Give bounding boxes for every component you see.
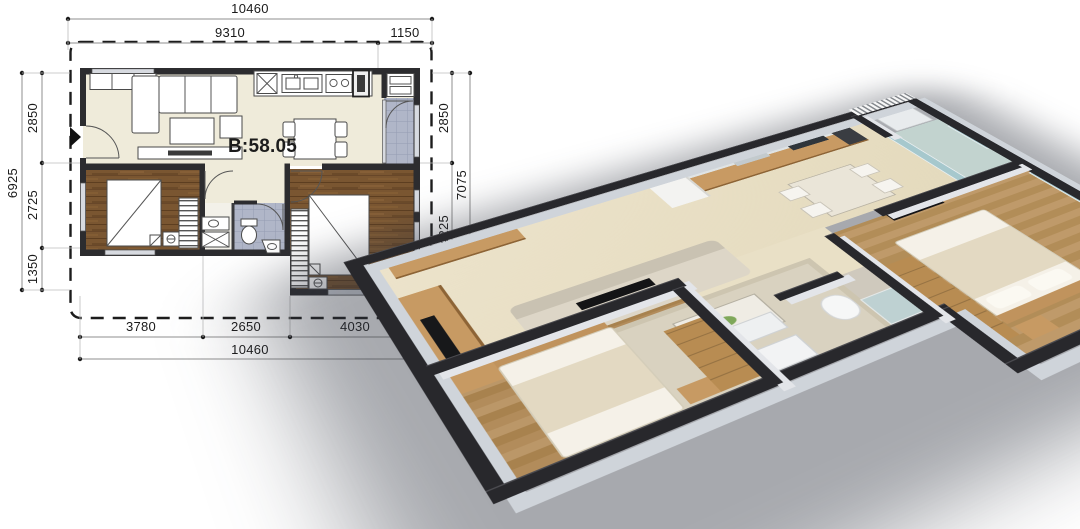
sofa-chaise [132, 76, 159, 133]
window [81, 183, 86, 231]
entry-arrow-icon [70, 127, 81, 147]
toilet [242, 226, 257, 244]
dim-label: 3780 [126, 319, 156, 334]
dimension-left: 6925 2850 2725 1350 [5, 71, 80, 292]
window [414, 190, 419, 212]
chair [335, 122, 347, 137]
dimension-top: 10460 9310 1150 [66, 1, 434, 68]
dim-label: 10460 [231, 1, 269, 16]
balcony-glass-door [383, 100, 387, 163]
dim-label: 1350 [25, 254, 40, 284]
wardrobe-1 [179, 198, 198, 248]
wash-basin [202, 217, 229, 230]
window [105, 250, 155, 255]
render-3d [480, 0, 1080, 529]
apartment-floorplan-image: B:58.05 10460 9310 1150 6925 2850 2725 1… [0, 0, 1080, 529]
coffee-table [170, 118, 214, 144]
chair [335, 142, 347, 157]
toilet-tank [241, 219, 257, 226]
dim-label: 10460 [231, 342, 269, 357]
chair [283, 122, 295, 137]
tv [168, 151, 212, 156]
sofa-main [159, 76, 237, 113]
dim-label: 7075 [454, 170, 469, 200]
dim-label: 2850 [25, 103, 40, 133]
dim-label: 2650 [231, 319, 261, 334]
balcony-floor [384, 98, 415, 164]
dim-label: 6925 [5, 168, 20, 198]
window [414, 105, 419, 157]
dining-table [294, 119, 336, 159]
dim-label: 2725 [25, 190, 40, 220]
dim-label: 9310 [215, 25, 245, 40]
unit-area-label: B:58.05 [228, 136, 297, 157]
dim-label: 2850 [436, 103, 451, 133]
hall-floor [200, 163, 290, 204]
dim-label: 1150 [390, 25, 419, 40]
side-table [220, 116, 242, 138]
